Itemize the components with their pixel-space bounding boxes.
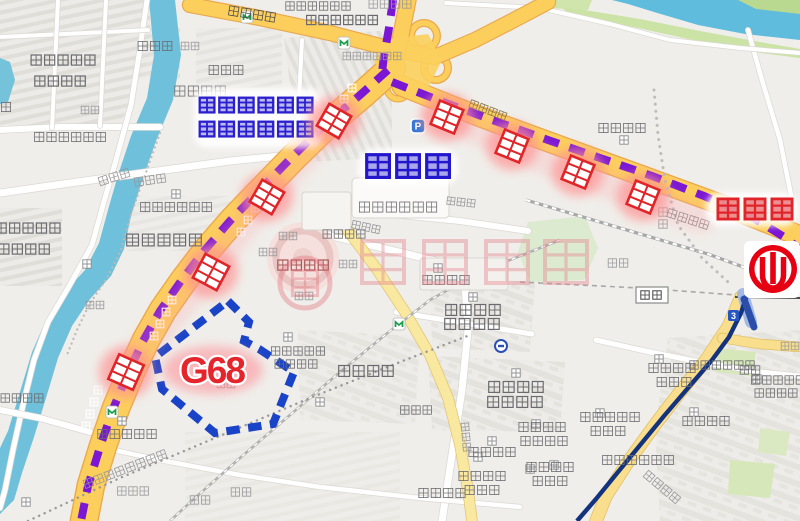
svg-text:P: P xyxy=(415,122,422,133)
svg-text:3: 3 xyxy=(731,311,736,321)
svg-text:G68: G68 xyxy=(180,350,245,391)
